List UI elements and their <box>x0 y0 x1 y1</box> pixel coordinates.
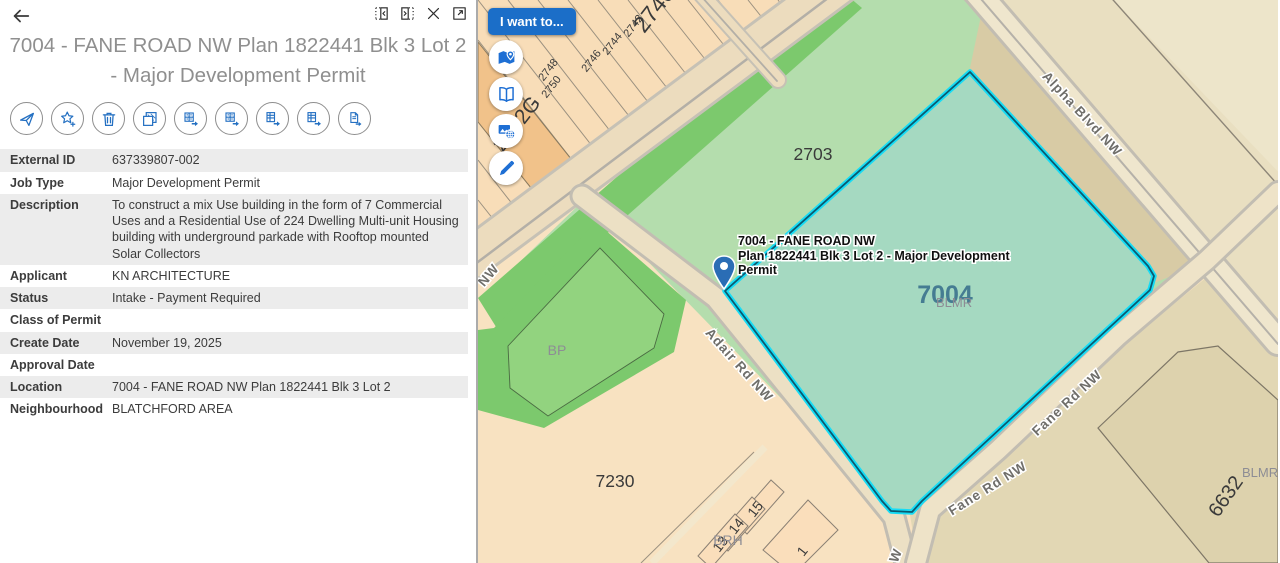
dock-panel-right-icon[interactable] <box>399 5 416 22</box>
parcel-label: 2703 <box>794 144 833 164</box>
table-row: External ID637339807-002 <box>0 149 468 171</box>
i-want-to-button[interactable]: I want to... <box>488 8 576 35</box>
field-label: Applicant <box>10 268 112 284</box>
bookmarks-button[interactable] <box>489 77 523 111</box>
field-label: External ID <box>10 152 112 168</box>
svg-text:Plan 1822441 Blk 3 Lot 2 - Maj: Plan 1822441 Blk 3 Lot 2 - Major Develop… <box>738 249 1010 263</box>
action-toolbar <box>0 90 476 135</box>
table-row: ApplicantKN ARCHITECTURE <box>0 265 468 287</box>
field-value: BLATCHFORD AREA <box>112 401 468 417</box>
attribute-table: External ID637339807-002 Job TypeMajor D… <box>0 149 476 420</box>
add-to-favorites-button[interactable] <box>51 102 84 135</box>
table-row: Location7004 - FANE ROAD NW Plan 1822441… <box>0 376 468 398</box>
parcel-label: BP <box>548 342 567 358</box>
parcel-label: BLMR <box>1242 465 1278 480</box>
field-label: Approval Date <box>10 357 112 373</box>
field-value: Major Development Permit <box>112 175 468 191</box>
export-table-button-1[interactable] <box>174 102 207 135</box>
table-row: StatusIntake - Payment Required <box>0 287 468 309</box>
svg-text:7004 - FANE ROAD NW: 7004 - FANE ROAD NW <box>738 234 875 248</box>
window-controls <box>373 5 468 22</box>
back-arrow-icon[interactable] <box>10 5 32 25</box>
table-row: DescriptionTo construct a mix Use buildi… <box>0 194 468 265</box>
field-value <box>112 312 468 328</box>
show-on-map-button[interactable] <box>489 40 523 74</box>
field-value: KN ARCHITECTURE <box>112 268 468 284</box>
field-value: To construct a mix Use building in the f… <box>112 197 468 262</box>
basemap: 2740 2742 2744 2746 2748 2750 2752G 275 … <box>478 0 1278 563</box>
table-row: Create DateNovember 19, 2025 <box>0 332 468 354</box>
field-value: 637339807-002 <box>112 152 468 168</box>
table-row: NeighbourhoodBLATCHFORD AREA <box>0 398 468 420</box>
export-table-button-2[interactable] <box>215 102 248 135</box>
table-row: Class of Permit <box>0 309 468 331</box>
export-table-button-4[interactable] <box>297 102 330 135</box>
parcel-label: BRH <box>713 532 743 548</box>
details-panel: 7004 - FANE ROAD NW Plan 1822441 Blk 3 L… <box>0 0 478 563</box>
field-value <box>112 357 468 373</box>
map-toolbar <box>489 40 523 185</box>
export-table-button-3[interactable] <box>256 102 289 135</box>
delete-button[interactable] <box>92 102 125 135</box>
field-value: 7004 - FANE ROAD NW Plan 1822441 Blk 3 L… <box>112 379 468 395</box>
field-label: Create Date <box>10 335 112 351</box>
zoom-to-feature-button[interactable] <box>10 102 43 135</box>
table-row: Job TypeMajor Development Permit <box>0 172 468 194</box>
svg-text:Permit: Permit <box>738 263 778 277</box>
draw-button[interactable] <box>489 151 523 185</box>
table-row: Approval Date <box>0 354 468 376</box>
app-window: 7004 - FANE ROAD NW Plan 1822441 Blk 3 L… <box>0 0 1280 563</box>
copy-button[interactable] <box>133 102 166 135</box>
map-viewport[interactable]: 2740 2742 2744 2746 2748 2750 2752G 275 … <box>478 0 1278 563</box>
dock-panel-left-icon[interactable] <box>373 5 390 22</box>
parcel-label: 7230 <box>596 471 635 491</box>
field-label: Neighbourhood <box>10 401 112 417</box>
field-label: Location <box>10 379 112 395</box>
field-value: Intake - Payment Required <box>112 290 468 306</box>
open-new-window-icon[interactable] <box>451 5 468 22</box>
close-icon[interactable] <box>425 5 442 22</box>
basemap-gallery-button[interactable] <box>489 114 523 148</box>
panel-header <box>0 0 476 25</box>
field-label: Status <box>10 290 112 306</box>
field-label: Description <box>10 197 112 262</box>
parcel-label: BLMR <box>936 295 972 310</box>
page-title: 7004 - FANE ROAD NW Plan 1822441 Blk 3 L… <box>0 31 476 90</box>
field-label: Job Type <box>10 175 112 191</box>
field-label: Class of Permit <box>10 312 112 328</box>
export-report-button[interactable] <box>338 102 371 135</box>
field-value: November 19, 2025 <box>112 335 468 351</box>
